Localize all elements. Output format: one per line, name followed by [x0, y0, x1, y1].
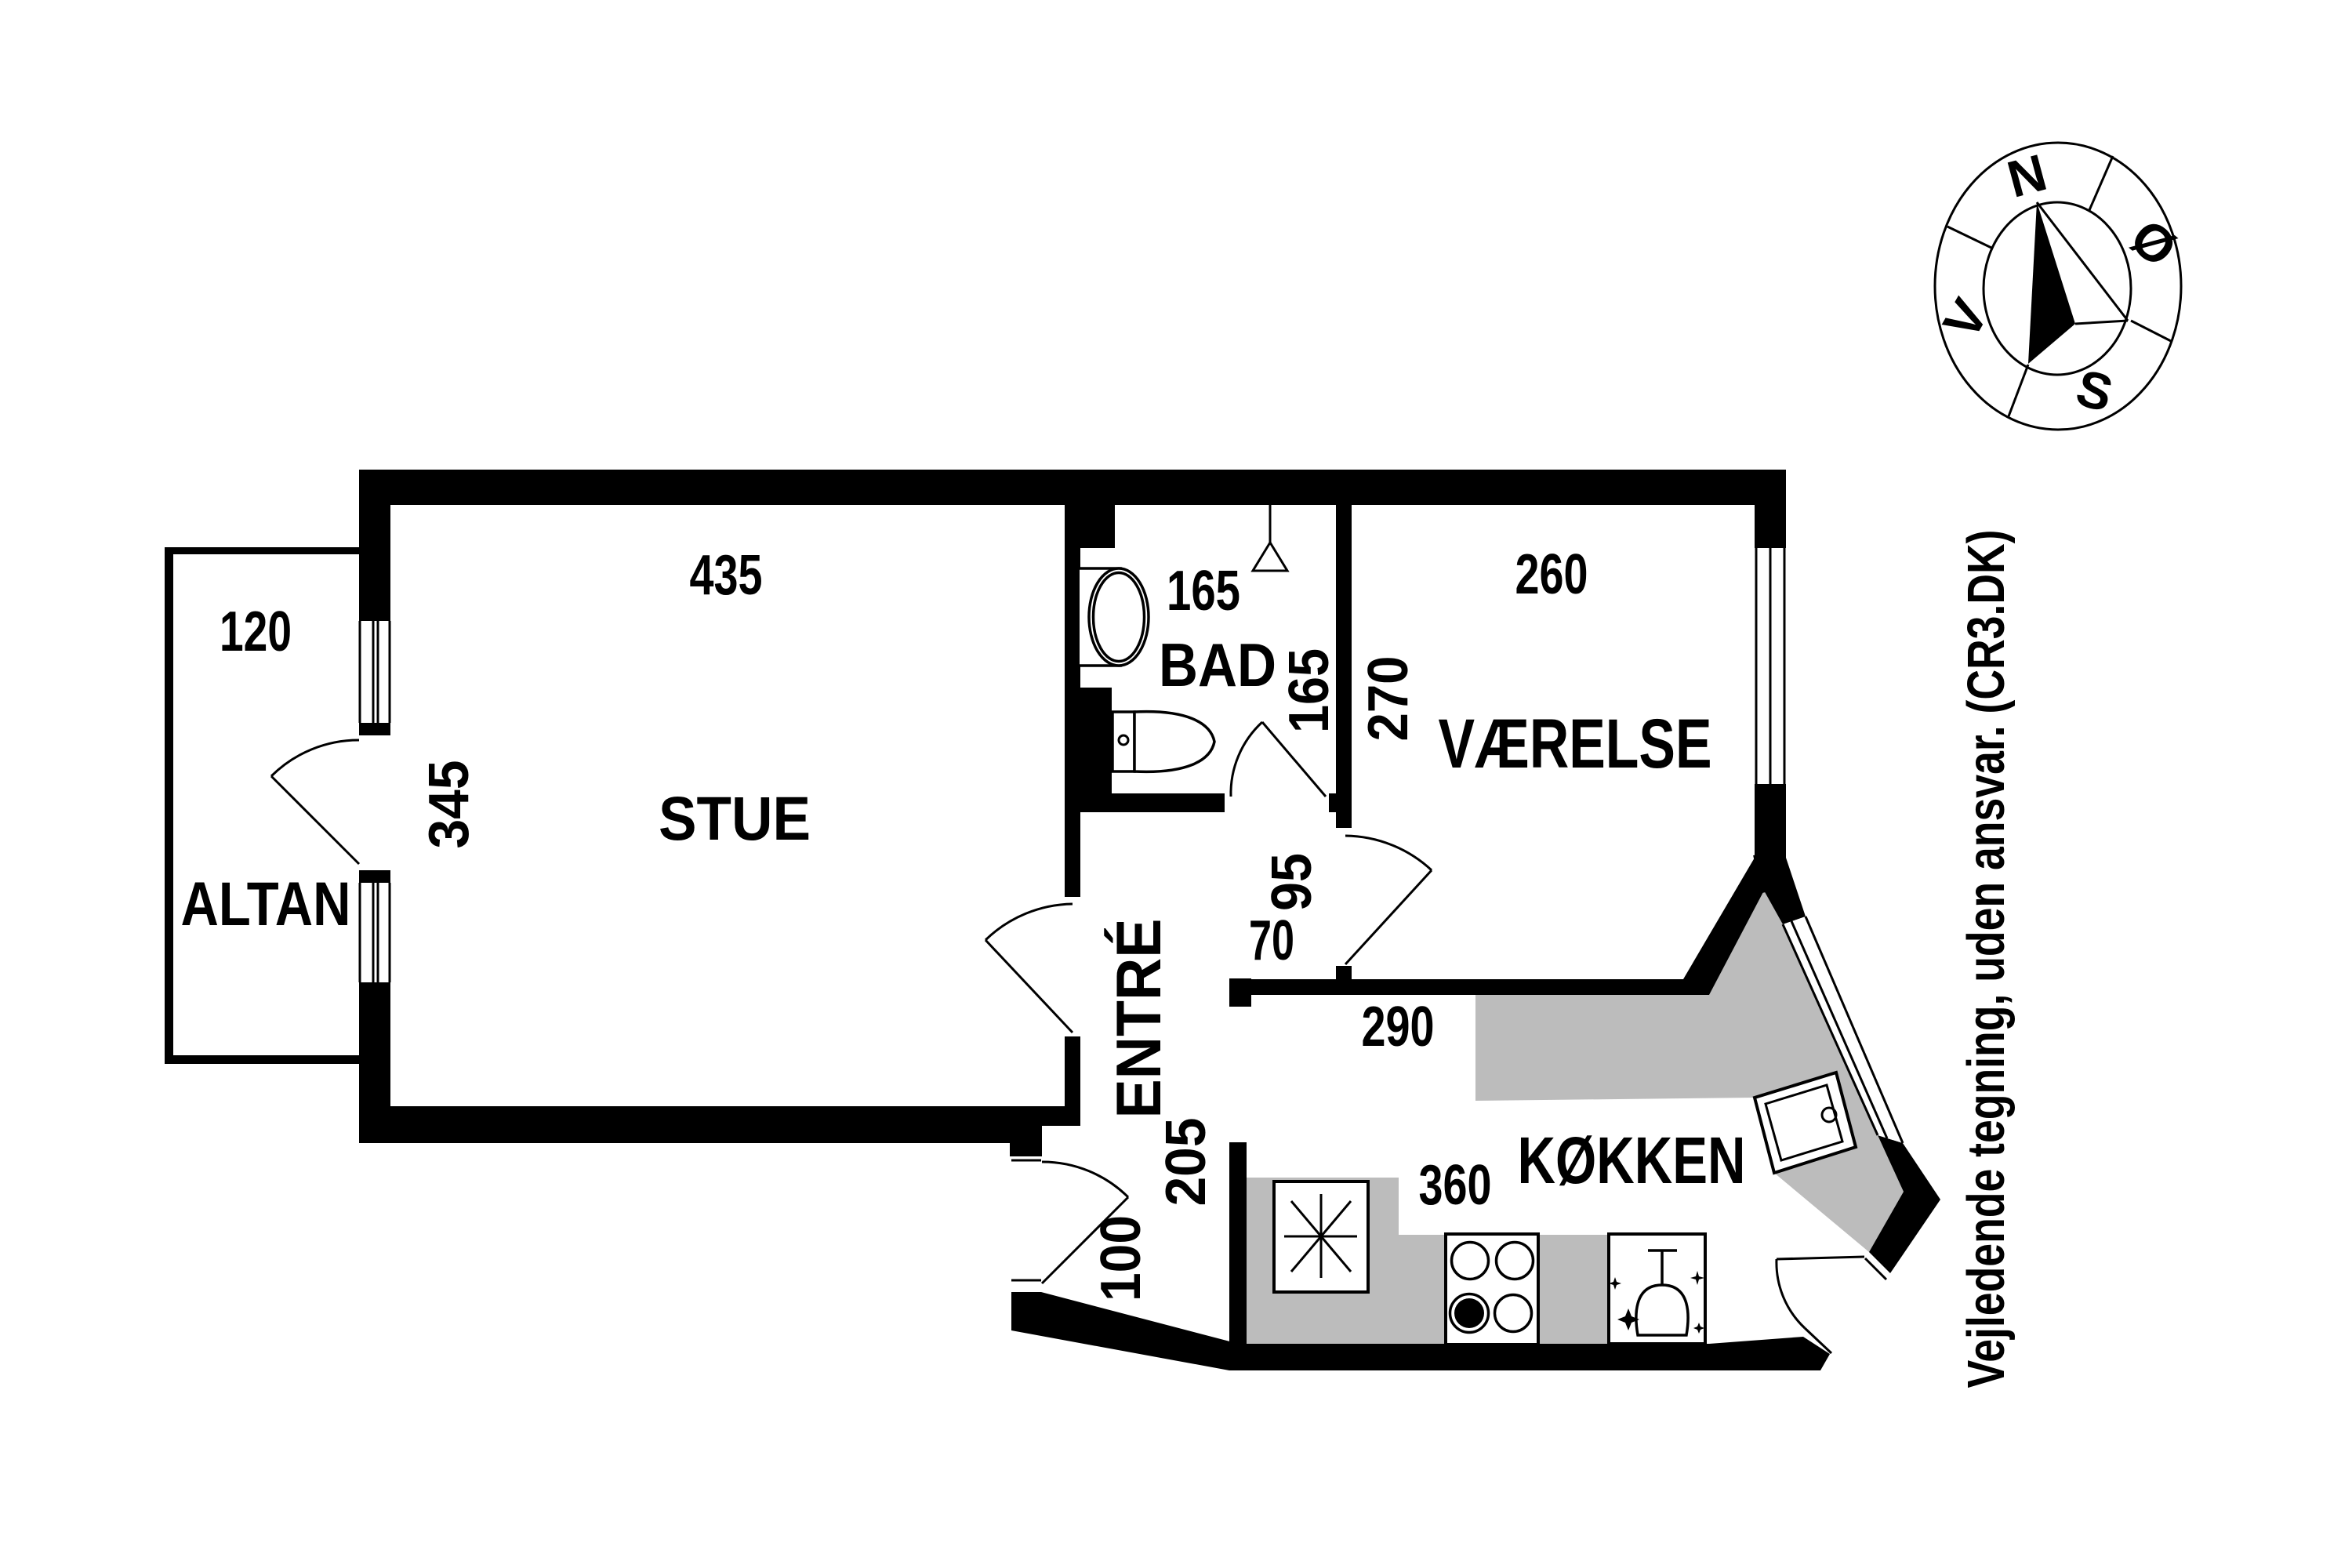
svg-text:165: 165 [1167, 560, 1240, 622]
svg-text:KØKKEN: KØKKEN [1518, 1123, 1746, 1197]
svg-text:95: 95 [1261, 853, 1323, 911]
svg-text:270: 270 [1357, 656, 1420, 742]
svg-text:VÆRELSE: VÆRELSE [1439, 704, 1712, 782]
svg-text:345: 345 [418, 760, 481, 849]
svg-text:BAD: BAD [1159, 630, 1276, 699]
svg-text:260: 260 [1515, 543, 1588, 606]
svg-text:ALTAN: ALTAN [181, 869, 351, 938]
svg-text:360: 360 [1419, 1154, 1492, 1217]
svg-text:435: 435 [690, 544, 763, 607]
svg-text:100: 100 [1090, 1215, 1152, 1301]
svg-text:Vejledende tegning, uden ansva: Vejledende tegning, uden ansvar. (CR3.DK… [1957, 530, 2016, 1388]
svg-text:165: 165 [1278, 648, 1341, 733]
svg-text:205: 205 [1155, 1118, 1218, 1207]
svg-text:290: 290 [1362, 996, 1435, 1058]
svg-text:STUE: STUE [659, 783, 811, 853]
svg-text:120: 120 [220, 601, 292, 663]
svg-text:ENTRÉ: ENTRÉ [1103, 919, 1174, 1119]
svg-text:70: 70 [1249, 909, 1294, 972]
